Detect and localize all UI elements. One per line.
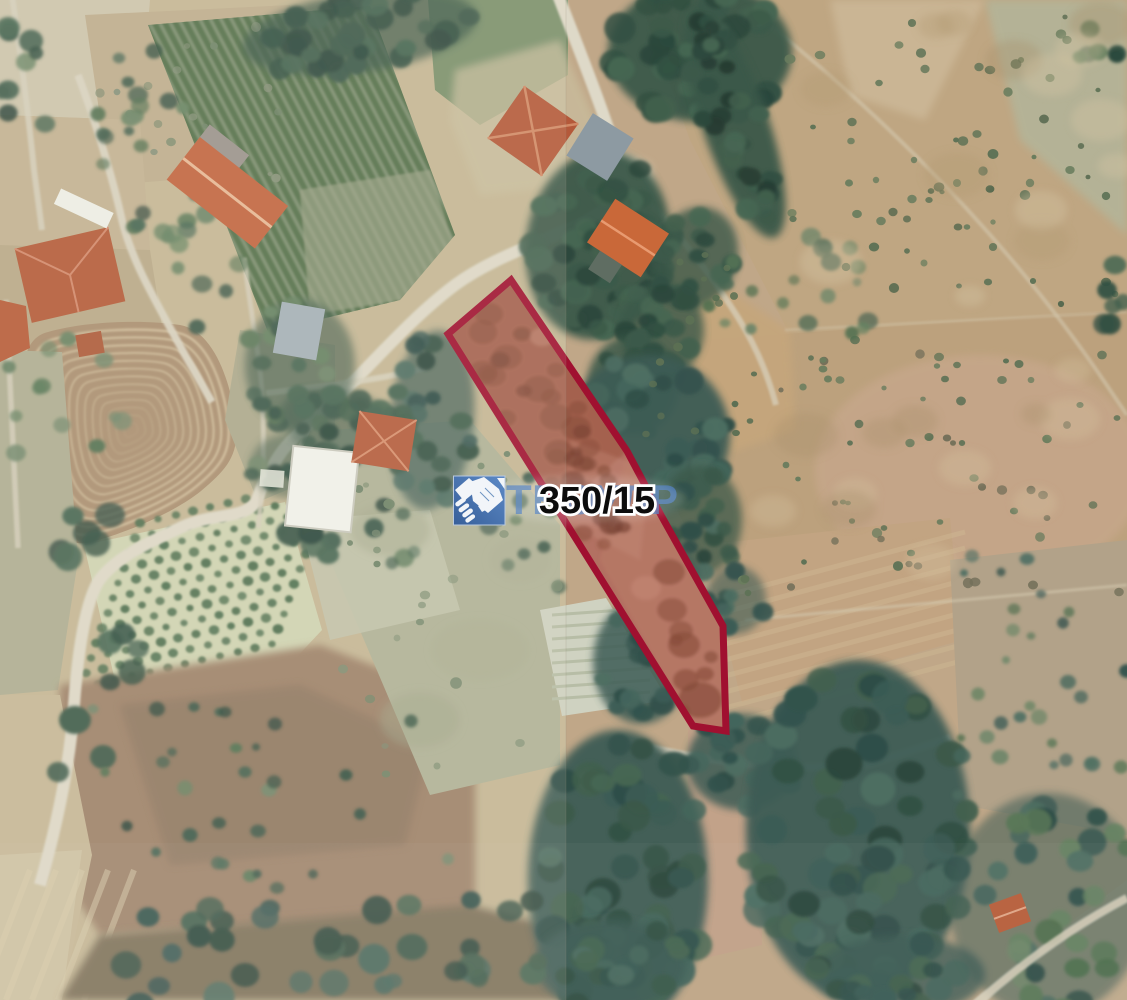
svg-text:350/15: 350/15 bbox=[539, 480, 655, 522]
